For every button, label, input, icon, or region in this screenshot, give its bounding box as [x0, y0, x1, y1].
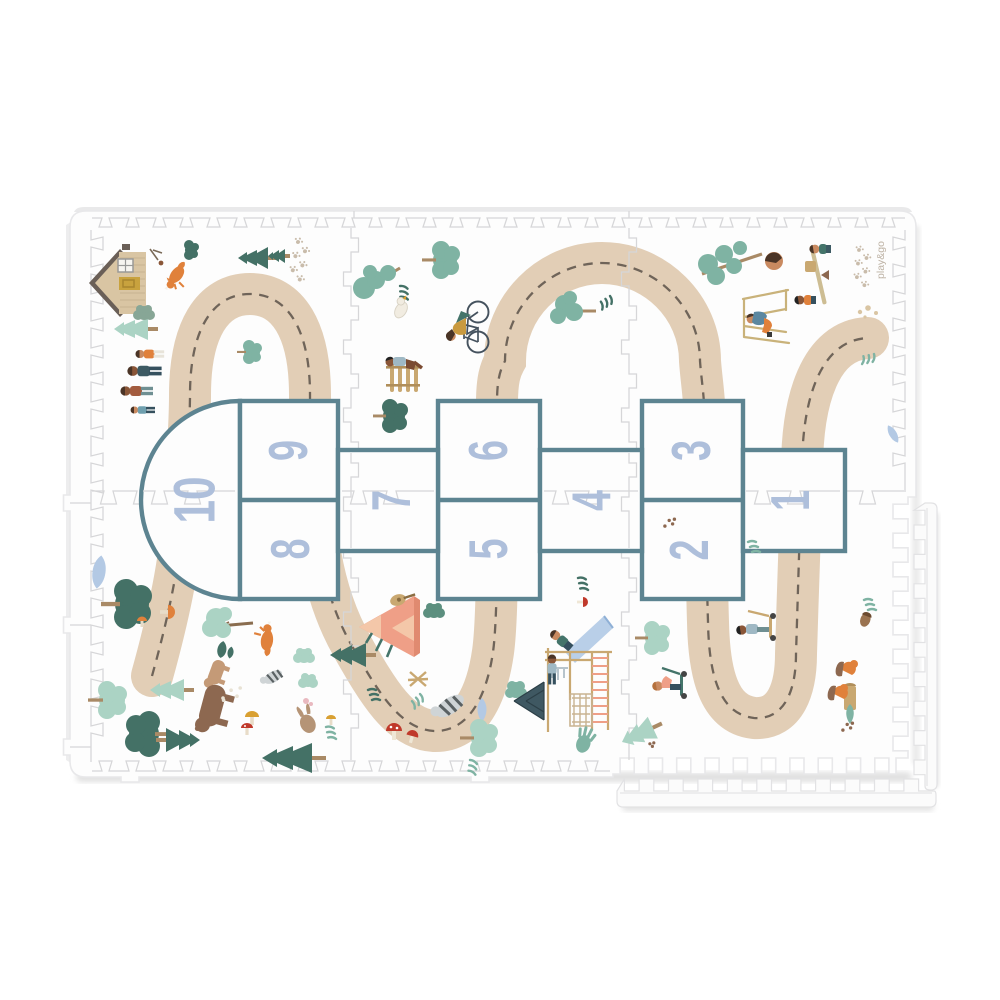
svg-text:1: 1 [759, 490, 821, 511]
svg-text:6: 6 [457, 440, 519, 461]
svg-text:play&go: play&go [875, 241, 887, 279]
svg-text:8: 8 [259, 539, 321, 560]
svg-text:7: 7 [360, 490, 422, 511]
svg-text:3: 3 [660, 440, 722, 461]
svg-text:9: 9 [257, 440, 319, 461]
svg-text:5: 5 [457, 539, 519, 560]
svg-text:10: 10 [163, 477, 228, 524]
svg-text:4: 4 [560, 490, 622, 511]
svg-text:2: 2 [658, 540, 720, 561]
